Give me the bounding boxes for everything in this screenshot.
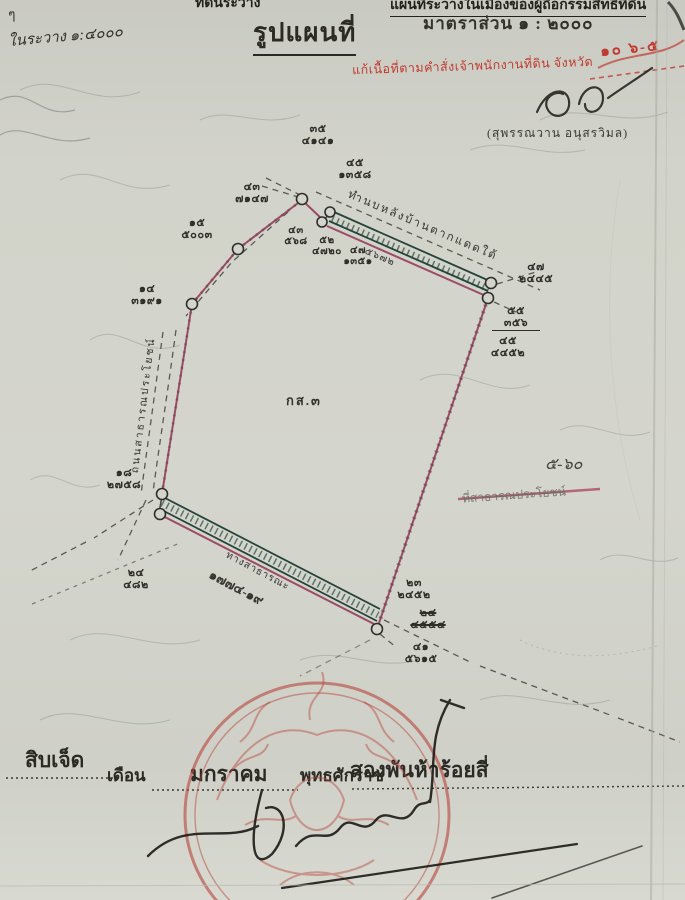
paper-crease-lines xyxy=(0,0,685,900)
stamp-and-signature-overlay xyxy=(0,0,685,900)
scanned-land-deed-page: ที่ดินระวาง แผนที่ระวางในเมืองของผู้ถือก… xyxy=(0,0,685,900)
main-signature xyxy=(148,700,642,898)
official-red-seal xyxy=(185,672,449,900)
initials-signature xyxy=(537,68,652,116)
